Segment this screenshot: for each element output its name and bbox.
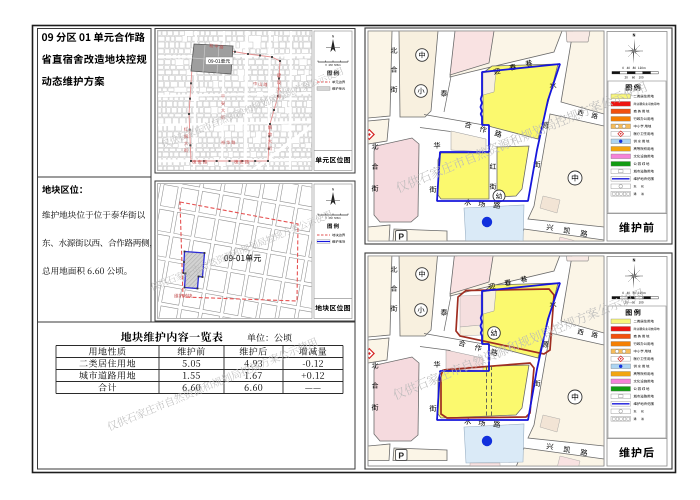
svg-text:P: P <box>398 451 404 461</box>
svg-text:P: P <box>398 232 404 242</box>
